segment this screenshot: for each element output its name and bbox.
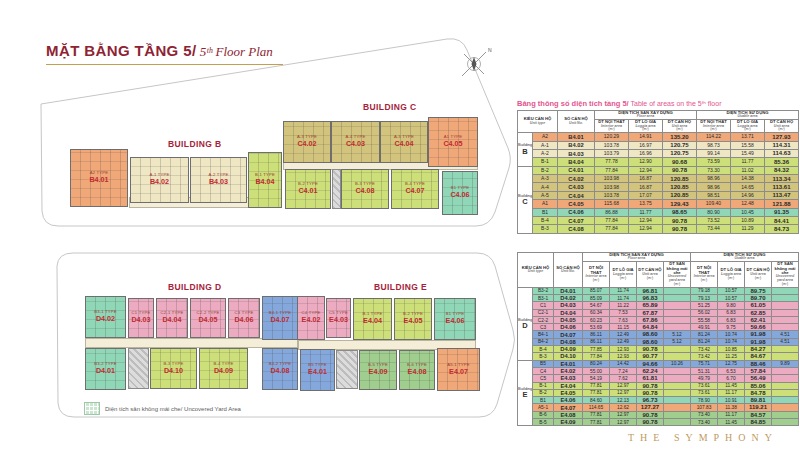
area-value-cell: 16.87	[629, 183, 663, 191]
unit-C4.08: B-3 TYPEC4.08	[341, 169, 389, 209]
area-value-cell	[772, 397, 799, 404]
area-value-cell: 84.78	[745, 389, 772, 396]
unit-number-label: E4.05	[404, 317, 423, 325]
unit-no-cell: E4.03	[554, 375, 583, 382]
area-value-cell: 15.49	[731, 149, 765, 157]
area-value-cell	[772, 389, 799, 396]
area-value-cell	[664, 346, 691, 353]
unit-number-label: E4.06	[446, 317, 465, 325]
unit-no-cell: E4.07	[554, 404, 583, 411]
unit-D4.10: B-3 TYPED4.10	[150, 348, 197, 389]
area-value-cell: 59.66	[745, 324, 772, 331]
unit-D4.06: C3 TYPED4.06	[228, 298, 260, 338]
unit-type-cell: A-2	[533, 149, 558, 157]
unit-no-cell: C4.03	[558, 183, 595, 191]
area-value-cell: 86.88	[595, 208, 629, 216]
area-value-cell: 127.27	[637, 404, 664, 411]
unit-E4.06: B1 TYPEE4.06	[434, 298, 476, 340]
area-value-cell: 61.81	[637, 375, 664, 382]
area-value-cell: 114.63	[765, 149, 799, 157]
table-row: A1C4.05115.6813.75129.43109.4012.48121.8…	[518, 200, 799, 208]
area-value-cell: 77.81	[583, 382, 610, 389]
unit-D4.05: C2-2 TYPED4.05	[190, 298, 226, 338]
area-value-cell: 98.60	[637, 331, 664, 338]
area-value-cell: 49.91	[691, 324, 718, 331]
area-value-cell: 6.83	[718, 309, 745, 316]
area-table-caption-vi: Bảng thông số diện tích tầng 5/	[517, 99, 629, 108]
area-value-cell: 90.78	[637, 346, 664, 353]
area-value-cell: 10.26	[664, 360, 691, 367]
area-value-cell: 73.40	[691, 411, 718, 418]
unit-no-cell: D4.02	[554, 294, 583, 301]
area-value-cell	[772, 309, 799, 316]
unit-no-cell: B4.01	[558, 133, 595, 141]
table-header-cell: DT LÔ GIALoggia area(m²)	[610, 262, 637, 288]
compass-icon: N	[462, 47, 492, 76]
area-value-cell	[664, 287, 691, 294]
area-value-cell: 73.44	[697, 225, 731, 233]
unit-number-label: C4.06	[450, 191, 469, 199]
table-row: C5E4.0354.197.6261.8149.796.7056.49	[518, 375, 799, 382]
area-value-cell: 12.93	[610, 346, 637, 353]
unit-type-cell: A-5	[533, 191, 558, 199]
area-value-cell: 103.98	[595, 175, 629, 183]
area-value-cell: 11.74	[610, 287, 637, 294]
area-value-cell: 12.48	[731, 200, 765, 208]
unit-no-cell: B4.03	[558, 149, 595, 157]
table-row: B1E4.0684.6012.1396.7378.9010.9189.81	[518, 397, 799, 404]
area-value-cell: 4.51	[772, 331, 799, 338]
unit-type-cell: B-4	[533, 217, 558, 225]
area-value-cell	[772, 294, 799, 301]
area-value-cell: 115.68	[595, 200, 629, 208]
area-value-cell: 11.22	[610, 302, 637, 309]
area-value-cell	[664, 294, 691, 301]
unit-number-label: D4.08	[270, 367, 289, 375]
unit-type-cell: B5	[533, 360, 554, 367]
area-value-cell: 77.84	[583, 353, 610, 360]
area-value-cell: 12.94	[629, 217, 663, 225]
area-value-cell: 80.90	[697, 208, 731, 216]
area-value-cell	[664, 382, 691, 389]
area-value-cell: 54.67	[583, 302, 610, 309]
unit-no-cell: D4.03	[554, 302, 583, 309]
area-value-cell	[772, 411, 799, 418]
unit-number-label: D4.04	[162, 316, 181, 324]
unit-type-cell: A5-1	[533, 404, 554, 411]
area-value-cell: 11.74	[610, 294, 637, 301]
area-value-cell: 113.47	[765, 191, 799, 199]
area-value-cell: 114.31	[765, 141, 799, 149]
area-table-caption-en: Table of areas on the 5ᵗʰ floor	[629, 100, 722, 107]
unit-E4.09: B-5 TYPEE4.09	[359, 350, 397, 390]
area-value-cell: 77.81	[583, 389, 610, 396]
table-header-cell: DIỆN TÍCH SỬ DỤNGUsable area	[697, 111, 799, 120]
area-value-cell: 16.96	[629, 149, 663, 157]
area-value-cell: 75.71	[691, 360, 718, 367]
floor-plan-page: N MẶT BẰNG TẦNG 5/ 5ᵗʰ Floor Plan BUILDI…	[0, 0, 800, 449]
area-value-cell: 85.09	[583, 294, 610, 301]
area-value-cell: 73.42	[691, 353, 718, 360]
area-value-cell: 9.80	[718, 302, 745, 309]
table-header-cell: DT NỘI THẤTInterior area(m²)	[595, 120, 629, 133]
building-group-cell: BuildingC	[518, 166, 533, 233]
area-value-cell: 11.17	[718, 411, 745, 418]
area-value-cell: 89.70	[745, 294, 772, 301]
area-value-cell: 90.78	[637, 382, 664, 389]
unit-number-label: D4.10	[164, 367, 183, 375]
unit-C4.01: B-2 TYPEC4.01	[285, 169, 331, 209]
area-value-cell: 120.85	[663, 191, 697, 199]
area-value-cell: 51.25	[691, 302, 718, 309]
unit-B4.01: A2 TYPEB4.01	[70, 149, 128, 207]
table-row: B3-1D4.0285.0911.7496.8379.1310.5789.70	[518, 294, 799, 301]
unit-no-cell: E4.06	[554, 397, 583, 404]
area-value-cell: 10.74	[718, 331, 745, 338]
area-value-cell: 16.87	[629, 175, 663, 183]
unit-no-cell: D4.07	[554, 331, 583, 338]
area-value-cell: 5.12	[664, 331, 691, 338]
unit-E4.05: B-2 TYPEE4.05	[394, 298, 432, 340]
table-header-cell: DIỆN TÍCH SÀN XÂY DỰNGFloor area	[583, 253, 691, 262]
unit-number-label: E4.08	[408, 368, 427, 376]
area-value-cell: 6.53	[718, 367, 745, 374]
table-row: B-4D4.0977.8512.9390.7873.4210.8584.27	[518, 346, 799, 353]
unit-E4.04: B-1 TYPEE4.04	[353, 298, 392, 340]
unit-number-label: D4.05	[198, 316, 217, 324]
unit-number-label: C4.07	[405, 187, 424, 195]
area-value-cell: 12.94	[629, 225, 663, 233]
area-value-cell: 99.14	[697, 149, 731, 157]
unit-number-label: D4.06	[234, 316, 253, 324]
area-value-cell: 129.43	[663, 200, 697, 208]
area-value-cell: 4.51	[772, 338, 799, 345]
area-value-cell	[664, 404, 691, 411]
area-value-cell: 73.42	[691, 346, 718, 353]
table-row: C3D4.0653.6911.1564.8449.919.7559.66	[518, 324, 799, 331]
building-d-label: BUILDING D	[168, 282, 222, 292]
area-value-cell: 107.83	[691, 404, 718, 411]
unit-no-cell: D4.04	[554, 309, 583, 316]
area-value-cell: 12.62	[610, 404, 637, 411]
unit-no-cell: E4.04	[554, 382, 583, 389]
building-group-cell: BuildingD	[518, 287, 533, 360]
table-header-cell: DT SÂN không mái cheUncovered yard area(…	[664, 262, 691, 288]
table-row: B-3C4.0877.8412.9490.7873.4411.2984.73	[518, 225, 799, 233]
unit-C4.06: B1 TYPEC4.06	[442, 171, 478, 215]
table-row: A-3C4.02103.9816.87120.8598.9614.38113.3…	[518, 175, 799, 183]
area-value-cell: 119.21	[745, 404, 772, 411]
area-value-cell: 7.63	[610, 316, 637, 323]
area-value-cell: 12.90	[629, 158, 663, 166]
unit-C4.07: B-4 TYPEC4.07	[391, 169, 439, 209]
area-value-cell	[772, 316, 799, 323]
unit-number-label: C4.02	[297, 140, 316, 148]
area-value-cell: 51.31	[691, 367, 718, 374]
area-value-cell: 6.70	[718, 375, 745, 382]
unit-type-cell: B-2	[533, 389, 554, 396]
table-row: B-1E4.0477.8112.9790.7873.6111.4585.06	[518, 382, 799, 389]
table-header-cell: DIỆN TÍCH SỬ DỤNGUsable area	[691, 253, 799, 262]
table-row: A-2B4.03103.7916.96120.7599.1415.49114.6…	[518, 149, 799, 157]
unit-number-label: E4.04	[363, 317, 382, 325]
area-value-cell: 56.49	[745, 375, 772, 382]
table-header-cell: DT NỘI THẤTInterior area(m²)	[583, 262, 610, 288]
unit-D4.01: B3-2 TYPED4.01	[85, 348, 126, 390]
area-value-cell: 120.75	[663, 149, 697, 157]
area-value-cell: 98.73	[697, 141, 731, 149]
unit-type-cell: C2-2	[533, 316, 554, 323]
unit-number-label: E4.07	[449, 368, 468, 376]
area-value-cell: 81.24	[691, 331, 718, 338]
area-value-cell: 114.65	[583, 404, 610, 411]
area-value-cell: 12.49	[610, 338, 637, 345]
unit-no-cell: D4.06	[554, 324, 583, 331]
area-value-cell: 65.89	[637, 302, 664, 309]
unit-C4.05: A1 TYPEC4.05	[428, 117, 478, 167]
table-row: C1D4.0354.6711.2265.8951.259.8061.05	[518, 302, 799, 309]
area-value-cell: 62.41	[745, 316, 772, 323]
area-value-cell: 13.75	[629, 200, 663, 208]
area-value-cell: 10.85	[718, 346, 745, 353]
unit-number-label: C4.04	[394, 140, 413, 148]
table-row: B-1B4.0477.7812.9090.6873.5911.7785.36	[518, 158, 799, 166]
area-value-cell: 7.24	[610, 367, 637, 374]
area-value-cell: 11.77	[629, 208, 663, 216]
unit-no-cell: E4.01	[554, 360, 583, 367]
area-value-cell: 11.17	[718, 389, 745, 396]
area-value-cell	[772, 375, 799, 382]
unit-no-cell: D4.10	[554, 353, 583, 360]
area-value-cell	[772, 419, 799, 426]
area-value-cell: 62.85	[745, 309, 772, 316]
area-value-cell: 60.34	[583, 309, 610, 316]
area-value-cell	[772, 367, 799, 374]
area-value-cell	[772, 404, 799, 411]
unit-number-label: E4.02	[302, 316, 321, 324]
area-value-cell: 12.97	[610, 419, 637, 426]
table-header-cell: DT NỘI THẤTInterior area(m²)	[697, 120, 731, 133]
unit-number-label: C4.05	[443, 140, 462, 148]
area-value-cell: 78.90	[691, 397, 718, 404]
unit-D4.02: B3-1 TYPED4.02	[85, 296, 126, 338]
unit-type-cell: B3-1	[533, 294, 554, 301]
unit-no-cell: D4.01	[554, 287, 583, 294]
unit-number-label: B4.02	[150, 178, 169, 186]
area-value-cell: 113.61	[765, 183, 799, 191]
area-value-cell: 73.61	[691, 389, 718, 396]
area-value-cell: 7.53	[610, 309, 637, 316]
area-value-cell: 90.78	[637, 411, 664, 418]
table-header-cell: DT LÔ GIALoggia area(m²)	[731, 120, 765, 133]
area-value-cell: 109.40	[697, 200, 731, 208]
page-title-en: 5ᵗʰ Floor Plan	[197, 44, 273, 59]
area-value-cell: 84.73	[765, 225, 799, 233]
area-value-cell	[664, 324, 691, 331]
area-value-cell: 135.20	[663, 133, 697, 141]
table-row: A-5C4.04103.7817.07120.8598.5114.96113.4…	[518, 191, 799, 199]
area-value-cell: 11.45	[718, 382, 745, 389]
area-value-cell: 54.19	[583, 375, 610, 382]
area-value-cell: 10.89	[731, 217, 765, 225]
area-value-cell: 90.78	[663, 166, 697, 174]
area-value-cell: 89.81	[745, 397, 772, 404]
area-value-cell	[772, 382, 799, 389]
brand-logo: THE SYMPHONY	[628, 432, 778, 443]
unit-no-cell: E4.08	[554, 411, 583, 418]
page-title-vi: MẶT BẰNG TẦNG 5/	[46, 42, 197, 59]
area-value-cell: 103.98	[595, 183, 629, 191]
unit-number-label: B4.01	[89, 176, 108, 184]
unit-type-cell: B-3	[533, 353, 554, 360]
area-value-cell: 56.02	[691, 309, 718, 316]
building-group-cell: BuildingE	[518, 360, 533, 426]
unit-E4.01: B5 TYPEE4.01	[300, 349, 335, 391]
table-row: B-6E4.0877.8112.9790.7873.4011.1784.57	[518, 411, 799, 418]
service-core	[332, 169, 341, 209]
unit-number-label: C4.01	[298, 187, 317, 195]
area-table-buildings-bc: KIỂU CĂN HỘUnit typeSỐ CĂN HỘUnit No.DIỆ…	[517, 110, 799, 234]
area-value-cell: 53.69	[583, 324, 610, 331]
unit-type-cell: B-3	[533, 225, 558, 233]
area-value-cell: 85.06	[745, 382, 772, 389]
unit-type-cell: B-5	[533, 419, 554, 426]
unit-type-cell: B-4	[533, 346, 554, 353]
area-value-cell: 90.78	[663, 225, 697, 233]
area-value-cell: 10.57	[718, 287, 745, 294]
area-value-cell: 103.78	[595, 191, 629, 199]
unit-type-cell: C4	[533, 367, 554, 374]
unit-type-cell: A-3	[533, 175, 558, 183]
unit-type-cell: A-1	[533, 141, 558, 149]
area-value-cell: 11.25	[718, 353, 745, 360]
table-row: B-2E4.0577.8112.9790.7873.6111.1784.78	[518, 389, 799, 396]
area-value-cell: 90.77	[637, 353, 664, 360]
unit-number-label: B4.04	[255, 178, 274, 186]
table-row: C2-1D4.0460.347.5367.8756.026.8362.85	[518, 309, 799, 316]
area-value-cell	[772, 346, 799, 353]
area-value-cell: 73.40	[691, 419, 718, 426]
unit-no-cell: E4.02	[554, 367, 583, 374]
table-header-cell: DT CĂN HỘUnit area(m²)	[637, 262, 664, 288]
area-value-cell: 84.32	[765, 166, 799, 174]
area-value-cell: 49.79	[691, 375, 718, 382]
unit-no-cell: C4.05	[558, 200, 595, 208]
area-value-cell: 86.11	[583, 338, 610, 345]
area-value-cell: 67.87	[637, 309, 664, 316]
area-value-cell: 98.51	[697, 191, 731, 199]
area-value-cell	[664, 353, 691, 360]
table-row: A5-1E4.07114.6512.62127.27107.8311.38119…	[518, 404, 799, 411]
unit-number-label: B4.03	[209, 178, 228, 186]
area-value-cell: 73.61	[691, 382, 718, 389]
area-value-cell: 127.93	[765, 133, 799, 141]
area-value-cell: 77.81	[583, 419, 610, 426]
table-row: B-3D4.1077.8412.9390.7773.4211.2584.67	[518, 353, 799, 360]
area-value-cell: 77.84	[595, 217, 629, 225]
table-row: C2-2D4.0560.237.6367.8655.586.8362.41	[518, 316, 799, 323]
area-value-cell: 6.83	[718, 316, 745, 323]
table-row: B1C4.0686.8811.7798.6580.9010.4591.35	[518, 208, 799, 216]
area-value-cell: 120.85	[663, 175, 697, 183]
unit-no-cell: B4.02	[558, 141, 595, 149]
table-header-cell: DIỆN TÍCH SÀN XÂY DỰNGFloor area	[595, 111, 697, 120]
area-value-cell: 77.85	[583, 346, 610, 353]
area-value-cell: 12.49	[610, 331, 637, 338]
area-value-cell: 84.60	[583, 397, 610, 404]
unit-number-label: E4.03	[329, 316, 348, 324]
area-value-cell: 12.94	[629, 166, 663, 174]
area-value-cell	[664, 367, 691, 374]
area-value-cell: 12.75	[718, 360, 745, 367]
uncovered-yard-swatch-icon	[84, 402, 100, 415]
unit-number-label: C4.03	[346, 140, 365, 148]
area-value-cell: 12.93	[610, 353, 637, 360]
unit-type-cell: B4-1	[533, 331, 554, 338]
area-value-cell: 91.98	[745, 338, 772, 345]
unit-type-cell: C5	[533, 375, 554, 382]
area-value-cell: 98.96	[697, 175, 731, 183]
table-header-cell: DT NỘI THẤTInterior area(m²)	[691, 262, 718, 288]
area-value-cell: 98.96	[697, 183, 731, 191]
area-value-cell: 77.84	[595, 166, 629, 174]
table-row: BuildingBA2B4.01120.2914.91135.20114.221…	[518, 133, 799, 141]
table-row: BuildingCB-2C4.0177.8412.9490.7873.3011.…	[518, 166, 799, 174]
area-value-cell: 120.29	[595, 133, 629, 141]
area-value-cell: 64.84	[637, 324, 664, 331]
table-header-cell: KIỂU CĂN HỘUnit type	[518, 253, 554, 288]
area-value-cell: 103.79	[595, 149, 629, 157]
unit-no-cell: C4.02	[558, 175, 595, 183]
area-value-cell: 5.12	[664, 338, 691, 345]
area-value-cell: 73.59	[697, 158, 731, 166]
area-value-cell: 84.67	[745, 353, 772, 360]
area-value-cell: 84.27	[745, 346, 772, 353]
unit-C4.04: A-5 TYPEC4.04	[380, 121, 428, 163]
unit-C4.02: A-3 TYPEC4.02	[283, 121, 331, 163]
unit-type-cell: A-4	[533, 183, 558, 191]
table-row: C4E4.0255.007.2462.2451.316.5357.84	[518, 367, 799, 374]
area-value-cell	[772, 287, 799, 294]
unit-B4.02: A-1 TYPEB4.02	[130, 157, 189, 203]
unit-type-cell: B3-2	[533, 287, 554, 294]
area-value-cell: 12.13	[610, 397, 637, 404]
area-value-cell: 79.13	[691, 294, 718, 301]
area-value-cell: 11.15	[610, 324, 637, 331]
unit-type-cell: B-1	[533, 158, 558, 166]
unit-type-cell: B-1	[533, 382, 554, 389]
unit-type-cell: A2	[533, 133, 558, 141]
area-value-cell: 79.18	[691, 287, 718, 294]
area-value-cell: 86.11	[583, 331, 610, 338]
table-header-cell: SỐ CĂN HỘUnit No.	[554, 253, 583, 288]
area-value-cell: 9.75	[718, 324, 745, 331]
unit-type-cell: B1	[533, 397, 554, 404]
area-value-cell: 80.24	[583, 360, 610, 367]
area-value-cell: 103.78	[595, 141, 629, 149]
area-value-cell: 84.85	[745, 419, 772, 426]
building-group-cell: BuildingB	[518, 133, 533, 167]
area-value-cell: 62.24	[637, 367, 664, 374]
page-title: MẶT BẰNG TẦNG 5/ 5ᵗʰ Floor Plan	[46, 42, 283, 65]
area-value-cell: 10.91	[718, 397, 745, 404]
unit-E4.07: A5-1 TYPEE4.07	[437, 348, 480, 391]
unit-no-cell: B4.04	[558, 158, 595, 166]
legend: Diện tích sân không mái che/ Uncovered Y…	[84, 402, 241, 415]
table-row: B4-2D4.0886.1112.4998.605.1281.2410.7491…	[518, 338, 799, 345]
area-value-cell: 91.98	[745, 331, 772, 338]
table-header-cell: SỐ CĂN HỘUnit No.	[558, 111, 595, 133]
